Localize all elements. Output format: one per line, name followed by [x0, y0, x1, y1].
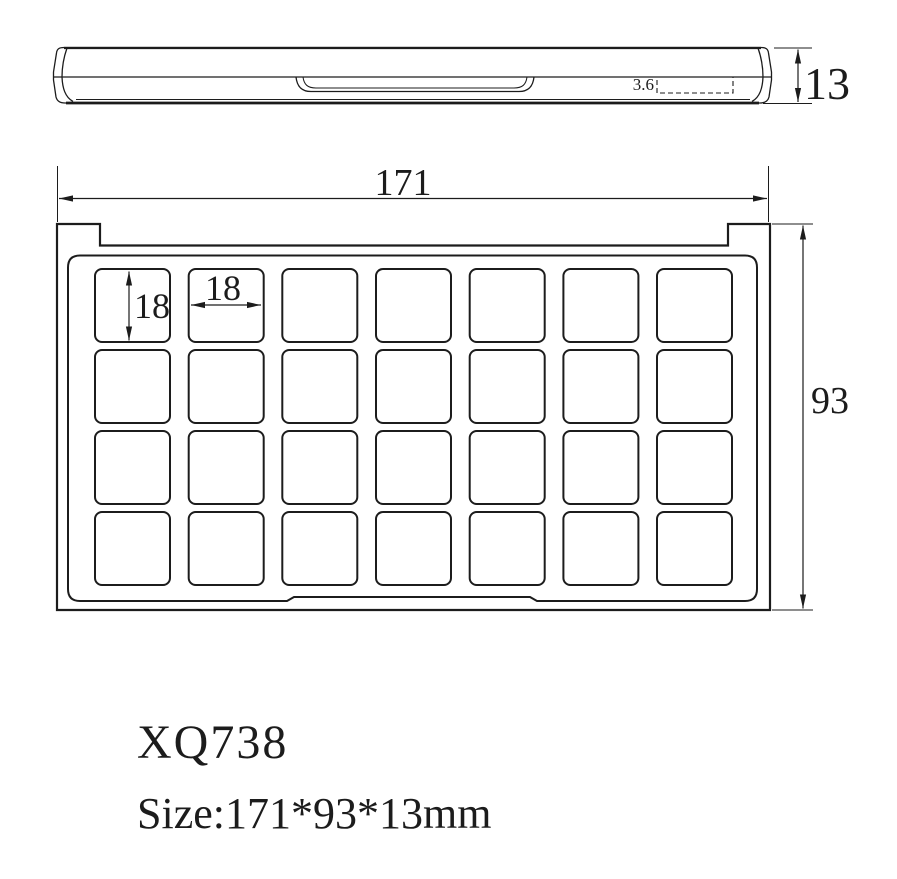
size-label: Size:171*93*13mm [137, 789, 491, 838]
pan-well [563, 431, 638, 504]
thumb-groove-inner [303, 77, 527, 88]
pan-well [470, 350, 545, 423]
pan-well [376, 350, 451, 423]
pan-well [376, 431, 451, 504]
pan-well [563, 269, 638, 342]
pan-well [470, 269, 545, 342]
pan-well [657, 512, 732, 585]
pan-well [470, 512, 545, 585]
pan-well [282, 512, 357, 585]
top-view: 171 18 18 93 [57, 162, 849, 610]
width-value: 171 [375, 162, 432, 204]
title-block: XQ738 Size:171*93*13mm [137, 716, 491, 838]
right-chamfer-line [758, 48, 763, 77]
pan-well [470, 431, 545, 504]
left-chamfer-line [62, 48, 67, 77]
pan-well [95, 512, 170, 585]
pan-well [376, 512, 451, 585]
pan-well [189, 350, 264, 423]
cell-width-dimension: 18 [191, 268, 261, 308]
drawing-svg: 3.6 13 171 18 18 [0, 0, 897, 879]
pan-well [657, 431, 732, 504]
pan-well [189, 512, 264, 585]
pan-grid [95, 269, 732, 585]
hidden-pocket-rect [657, 77, 733, 93]
side-view-outline [54, 48, 772, 104]
thickness-dimension: 13 [763, 48, 850, 109]
height-value: 93 [811, 380, 849, 422]
thickness-value: 13 [804, 58, 850, 109]
pan-well [282, 269, 357, 342]
left-bottom-chamfer-line [62, 77, 73, 102]
pan-well [657, 269, 732, 342]
pan-well [95, 431, 170, 504]
right-bottom-chamfer-line [752, 77, 763, 102]
cell-width-value: 18 [205, 268, 241, 308]
side-view: 3.6 13 [54, 48, 851, 110]
width-dimension: 171 [58, 162, 769, 222]
case-outline [57, 224, 770, 610]
tray-frame [68, 256, 757, 602]
pan-well [282, 350, 357, 423]
pan-well [376, 269, 451, 342]
model-number: XQ738 [137, 716, 288, 769]
pan-well [282, 431, 357, 504]
pocket-depth-label: 3.6 [633, 75, 654, 94]
pan-well [563, 512, 638, 585]
technical-drawing: 3.6 13 171 18 18 [0, 0, 897, 879]
pan-well [563, 350, 638, 423]
height-dimension: 93 [772, 224, 849, 610]
thumb-groove-outer [296, 77, 534, 92]
cell-height-value: 18 [134, 286, 170, 326]
pan-well [189, 431, 264, 504]
pan-well [95, 350, 170, 423]
cell-height-dimension: 18 [129, 272, 170, 341]
pan-well [657, 350, 732, 423]
